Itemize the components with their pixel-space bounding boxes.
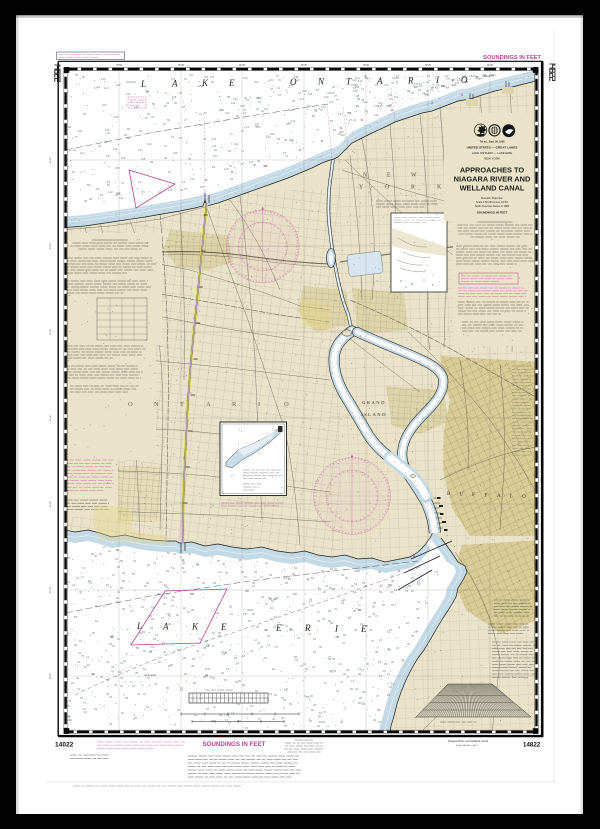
svg-text:77: 77 [367, 77, 370, 81]
svg-text:54: 54 [67, 704, 70, 708]
svg-text:F: F [472, 492, 475, 498]
svg-text:59: 59 [106, 678, 109, 682]
svg-text:39: 39 [106, 692, 109, 696]
svg-text:15: 15 [260, 645, 263, 649]
svg-text:60: 60 [358, 608, 361, 612]
svg-text:53: 53 [212, 631, 215, 635]
svg-text:27: 27 [103, 545, 106, 549]
svg-text:45: 45 [94, 554, 97, 558]
svg-text:12: 12 [254, 638, 257, 642]
svg-text:20: 20 [147, 112, 150, 116]
svg-text:45: 45 [179, 91, 182, 95]
svg-text:32: 32 [67, 714, 70, 718]
svg-text:79°20': 79°20' [487, 65, 494, 67]
svg-text:66: 66 [146, 581, 149, 585]
svg-text:39: 39 [191, 592, 194, 596]
svg-text:41: 41 [250, 649, 253, 653]
svg-text:10: 10 [180, 688, 183, 692]
svg-text:22: 22 [353, 118, 356, 122]
svg-text:47: 47 [276, 74, 279, 78]
svg-text:82: 82 [411, 91, 414, 95]
svg-text:28: 28 [328, 609, 331, 613]
svg-text:57: 57 [283, 151, 286, 155]
svg-text:31: 31 [220, 640, 223, 644]
svg-text:131: 131 [101, 77, 106, 81]
svg-text:57: 57 [275, 645, 278, 649]
svg-text:60: 60 [211, 80, 214, 84]
svg-text:10: 10 [87, 663, 90, 667]
svg-text:64: 64 [212, 165, 215, 169]
svg-text:128: 128 [289, 108, 294, 112]
svg-text:14: 14 [353, 590, 356, 594]
svg-text:63: 63 [228, 149, 231, 153]
svg-text:76: 76 [371, 639, 374, 643]
svg-text:38: 38 [378, 570, 381, 574]
svg-text:44: 44 [303, 662, 306, 666]
svg-text:64: 64 [365, 109, 368, 113]
svg-text:13: 13 [138, 180, 141, 184]
svg-text:46: 46 [257, 641, 260, 645]
svg-text:101: 101 [254, 80, 259, 84]
svg-text:18: 18 [107, 131, 110, 135]
svg-text:122: 122 [108, 190, 113, 194]
svg-text:41: 41 [417, 600, 420, 604]
svg-text:19: 19 [100, 193, 103, 197]
svg-text:Tonawanda: Tonawanda [144, 674, 157, 677]
svg-text:A: A [497, 493, 501, 499]
svg-text:22: 22 [98, 144, 101, 148]
svg-text:17: 17 [267, 643, 270, 647]
svg-text:14: 14 [153, 561, 156, 565]
svg-text:54: 54 [319, 711, 322, 715]
svg-text:50: 50 [306, 695, 309, 699]
svg-text:95: 95 [292, 99, 295, 103]
svg-text:37: 37 [80, 696, 83, 700]
svg-text:27: 27 [376, 694, 379, 698]
svg-text:19: 19 [255, 124, 258, 128]
svg-text:77: 77 [290, 139, 293, 143]
svg-text:38: 38 [135, 671, 138, 675]
svg-text:Scale 1:80,000 at Lat. 43°10': Scale 1:80,000 at Lat. 43°10' [476, 201, 509, 204]
svg-text:45: 45 [354, 628, 357, 632]
svg-text:56: 56 [82, 75, 85, 79]
svg-text:14822: 14822 [523, 742, 541, 749]
svg-text:76: 76 [294, 592, 297, 596]
svg-text:79°50': 79°50' [116, 65, 123, 67]
svg-text:10: 10 [76, 576, 79, 580]
svg-text:129: 129 [324, 95, 329, 99]
svg-text:76: 76 [265, 602, 268, 606]
svg-text:E: E [275, 623, 282, 633]
svg-text:115: 115 [116, 83, 121, 87]
svg-text:68: 68 [362, 702, 365, 706]
svg-text:32: 32 [336, 689, 339, 693]
svg-text:42: 42 [168, 622, 171, 626]
svg-text:27: 27 [334, 94, 337, 98]
svg-text:36: 36 [332, 85, 335, 89]
svg-text:110: 110 [231, 101, 236, 105]
svg-text:47: 47 [375, 614, 378, 618]
svg-text:99: 99 [150, 160, 153, 164]
svg-text:43°25': 43°25' [50, 672, 52, 679]
svg-text:41: 41 [106, 660, 109, 664]
svg-text:LAKE ONTARIO — LAKE ERIE: LAKE ONTARIO — LAKE ERIE [472, 151, 513, 155]
svg-text:57: 57 [171, 566, 174, 570]
svg-text:21: 21 [379, 638, 382, 642]
svg-text:38: 38 [110, 635, 113, 639]
svg-text:115: 115 [330, 91, 335, 95]
svg-text:58: 58 [356, 85, 359, 89]
svg-text:25: 25 [332, 587, 335, 591]
svg-text:40: 40 [91, 672, 94, 676]
svg-text:15: 15 [264, 656, 267, 660]
svg-text:19: 19 [123, 659, 126, 663]
svg-text:24: 24 [261, 595, 264, 599]
svg-text:39: 39 [164, 156, 167, 160]
svg-text:27: 27 [184, 118, 187, 122]
svg-text:71: 71 [171, 604, 174, 608]
svg-text:48: 48 [269, 597, 272, 601]
svg-text:SOUNDINGS IN FEET: SOUNDINGS IN FEET [477, 211, 508, 215]
svg-text:123: 123 [80, 151, 85, 155]
svg-text:O: O [385, 185, 389, 191]
svg-text:76: 76 [164, 708, 167, 712]
svg-text:78: 78 [362, 690, 365, 694]
svg-text:20: 20 [245, 726, 248, 730]
svg-text:41: 41 [426, 80, 429, 84]
svg-text:53: 53 [255, 689, 258, 693]
svg-text:42: 42 [77, 660, 80, 664]
svg-text:E: E [360, 624, 367, 634]
svg-text:42: 42 [391, 660, 394, 664]
svg-text:34: 34 [230, 177, 233, 181]
svg-text:73: 73 [203, 137, 206, 141]
svg-text:49: 49 [373, 718, 376, 722]
svg-text:50: 50 [218, 634, 221, 638]
svg-text:32: 32 [99, 552, 102, 556]
svg-text:R: R [407, 76, 414, 86]
svg-text:71: 71 [241, 149, 244, 153]
svg-text:75: 75 [212, 676, 215, 680]
svg-text:35: 35 [226, 713, 229, 717]
svg-text:65: 65 [289, 702, 292, 706]
svg-text:35: 35 [285, 581, 288, 585]
svg-text:22: 22 [183, 570, 186, 574]
svg-text:28: 28 [100, 675, 103, 679]
svg-text:132: 132 [352, 78, 357, 82]
svg-text:136: 136 [233, 97, 238, 101]
svg-text:35: 35 [75, 73, 78, 77]
svg-text:69: 69 [142, 630, 145, 634]
svg-text:79: 79 [151, 115, 154, 119]
svg-text:70: 70 [155, 633, 158, 637]
svg-text:41: 41 [108, 549, 111, 553]
svg-text:41: 41 [197, 84, 200, 88]
svg-text:31: 31 [270, 87, 273, 91]
svg-text:16: 16 [391, 682, 394, 686]
svg-text:78: 78 [120, 676, 123, 680]
svg-text:35: 35 [366, 662, 369, 666]
svg-text:78: 78 [81, 654, 84, 658]
svg-text:70: 70 [278, 78, 281, 82]
svg-text:59: 59 [379, 590, 382, 594]
svg-text:Mercator Projection: Mercator Projection [481, 197, 503, 200]
svg-text:136: 136 [121, 156, 126, 160]
svg-text:R: R [232, 401, 237, 408]
svg-text:122: 122 [104, 86, 109, 90]
svg-text:12: 12 [265, 561, 268, 565]
svg-text:86: 86 [127, 127, 130, 131]
svg-text:79: 79 [269, 692, 272, 696]
svg-text:22: 22 [252, 612, 255, 616]
svg-text:76: 76 [368, 615, 371, 619]
svg-text:38: 38 [227, 95, 230, 99]
svg-text:61: 61 [419, 82, 422, 86]
svg-text:85: 85 [127, 136, 130, 140]
svg-text:39: 39 [183, 656, 186, 660]
svg-text:66: 66 [305, 667, 308, 671]
svg-text:98: 98 [68, 125, 71, 129]
svg-text:79°45': 79°45' [178, 65, 185, 67]
svg-text:112: 112 [307, 104, 312, 108]
svg-text:33: 33 [79, 129, 82, 133]
svg-text:88: 88 [87, 183, 90, 187]
svg-text:38: 38 [384, 662, 387, 666]
svg-text:75: 75 [164, 596, 167, 600]
svg-text:64: 64 [157, 592, 160, 596]
svg-text:56: 56 [238, 719, 241, 723]
svg-text:35: 35 [67, 556, 70, 560]
svg-text:48: 48 [284, 138, 287, 142]
svg-text:64: 64 [88, 579, 91, 583]
svg-text:51: 51 [387, 630, 390, 634]
svg-text:61: 61 [342, 641, 345, 645]
svg-text:106: 106 [115, 166, 120, 170]
svg-text:31: 31 [163, 122, 166, 126]
svg-text:115: 115 [200, 185, 205, 189]
svg-text:49: 49 [122, 571, 125, 575]
svg-text:25: 25 [350, 687, 353, 691]
svg-text:K: K [191, 622, 199, 632]
svg-text:APPROACHES TO: APPROACHES TO [460, 166, 525, 175]
svg-text:54: 54 [184, 77, 187, 81]
svg-text:132: 132 [168, 188, 173, 192]
svg-text:101: 101 [264, 107, 269, 111]
svg-text:40: 40 [272, 717, 275, 721]
svg-text:30: 30 [391, 579, 394, 583]
svg-text:62: 62 [158, 660, 161, 664]
svg-text:24: 24 [427, 74, 430, 78]
svg-text:45: 45 [76, 676, 79, 680]
svg-text:60: 60 [167, 118, 170, 122]
svg-text:115: 115 [212, 144, 217, 148]
svg-text:92: 92 [139, 129, 142, 133]
svg-text:16: 16 [324, 681, 327, 685]
svg-text:55: 55 [72, 170, 75, 174]
svg-text:102: 102 [102, 103, 107, 107]
svg-text:69: 69 [193, 681, 196, 685]
svg-text:30: 30 [336, 635, 339, 639]
svg-text:66: 66 [238, 679, 241, 683]
svg-text:13: 13 [72, 583, 75, 587]
svg-text:79°30': 79°30' [363, 65, 370, 67]
svg-text:71: 71 [334, 607, 337, 611]
svg-text:71: 71 [298, 91, 301, 95]
svg-text:48: 48 [375, 650, 378, 654]
svg-text:103: 103 [269, 78, 274, 82]
svg-text:46: 46 [184, 672, 187, 676]
svg-text:120: 120 [378, 101, 383, 105]
svg-text:61: 61 [388, 648, 391, 652]
svg-text:47: 47 [229, 605, 232, 609]
svg-text:45: 45 [217, 559, 220, 563]
svg-text:94: 94 [96, 187, 99, 191]
svg-text:29: 29 [216, 611, 219, 615]
svg-text:70: 70 [351, 584, 354, 588]
svg-text:71: 71 [260, 575, 263, 579]
svg-text:64: 64 [378, 660, 381, 664]
svg-text:30: 30 [416, 607, 419, 611]
svg-text:25: 25 [274, 597, 277, 601]
svg-text:25: 25 [133, 559, 136, 563]
svg-text:68: 68 [373, 601, 376, 605]
svg-text:14022: 14022 [55, 742, 74, 749]
svg-text:47: 47 [323, 710, 326, 714]
svg-text:52: 52 [224, 678, 227, 682]
svg-text:97: 97 [389, 97, 392, 101]
svg-text:72: 72 [82, 566, 85, 570]
svg-text:80: 80 [288, 577, 291, 581]
svg-text:105: 105 [173, 151, 178, 155]
svg-text:43°45': 43°45' [50, 328, 52, 335]
svg-text:56: 56 [167, 551, 170, 555]
svg-text:39: 39 [319, 645, 322, 649]
svg-text:59: 59 [269, 573, 272, 577]
svg-text:102: 102 [243, 76, 248, 80]
svg-text:68: 68 [407, 89, 410, 93]
svg-text:62: 62 [313, 703, 316, 707]
svg-text:34: 34 [390, 590, 393, 594]
svg-text:100: 100 [263, 164, 268, 168]
svg-text:43°55': 43°55' [50, 156, 52, 163]
svg-text:109: 109 [114, 115, 119, 119]
svg-text:23: 23 [230, 612, 233, 616]
svg-text:84: 84 [484, 74, 487, 78]
svg-text:53: 53 [316, 88, 319, 92]
svg-text:18: 18 [107, 180, 110, 184]
svg-text:48: 48 [254, 570, 257, 574]
svg-text:49: 49 [89, 197, 92, 201]
svg-text:N: N [154, 401, 159, 408]
svg-text:24: 24 [246, 125, 249, 129]
svg-text:107: 107 [116, 191, 121, 195]
svg-text:62: 62 [214, 148, 217, 152]
svg-text:85: 85 [312, 114, 315, 118]
svg-text:78: 78 [333, 669, 336, 673]
svg-text:Scale 1:80,000 — Ed. 7: Scale 1:80,000 — Ed. 7 [456, 745, 479, 747]
svg-text:37: 37 [316, 128, 319, 132]
svg-text:10: 10 [84, 710, 87, 714]
svg-text:A: A [162, 621, 169, 631]
svg-text:15: 15 [179, 136, 182, 140]
svg-text:55: 55 [125, 696, 128, 700]
svg-text:46: 46 [407, 642, 410, 646]
svg-text:35: 35 [109, 722, 112, 726]
svg-text:30: 30 [203, 675, 206, 679]
svg-text:40: 40 [378, 720, 381, 724]
svg-text:36: 36 [277, 137, 280, 141]
svg-text:68: 68 [211, 719, 214, 723]
svg-text:38: 38 [219, 713, 222, 717]
svg-text:26: 26 [317, 724, 320, 728]
svg-text:NIAGARA RIVER AND: NIAGARA RIVER AND [454, 175, 531, 184]
svg-text:26: 26 [322, 617, 325, 621]
svg-text:71: 71 [270, 606, 273, 610]
svg-text:76: 76 [281, 696, 284, 700]
svg-text:55: 55 [74, 615, 77, 619]
svg-text:137: 137 [106, 154, 111, 158]
svg-text:68: 68 [146, 90, 149, 94]
svg-text:21: 21 [67, 580, 70, 584]
svg-text:North American Datum of 1983: North American Datum of 1983 [475, 205, 510, 208]
svg-text:73: 73 [297, 636, 300, 640]
svg-text:54: 54 [379, 674, 382, 678]
svg-text:13: 13 [351, 679, 354, 683]
svg-text:78: 78 [329, 669, 332, 673]
svg-text:51: 51 [354, 582, 357, 586]
svg-text:130: 130 [489, 74, 494, 78]
svg-text:66: 66 [358, 701, 361, 705]
svg-text:115: 115 [210, 75, 215, 79]
svg-text:93: 93 [391, 81, 394, 85]
svg-text:30: 30 [343, 633, 346, 637]
svg-text:25: 25 [329, 586, 332, 590]
svg-text:37: 37 [75, 135, 78, 139]
svg-text:58: 58 [120, 559, 123, 563]
svg-text:32: 32 [406, 621, 409, 625]
svg-text:38: 38 [332, 657, 335, 661]
svg-text:43°30': 43°30' [50, 586, 52, 593]
svg-text:49: 49 [359, 696, 362, 700]
svg-text:54: 54 [120, 684, 123, 688]
svg-text:54: 54 [311, 576, 314, 580]
svg-text:29: 29 [389, 103, 392, 107]
svg-text:72: 72 [414, 630, 417, 634]
svg-text:37: 37 [187, 610, 190, 614]
svg-text:40: 40 [451, 78, 454, 82]
svg-text:29: 29 [383, 669, 386, 673]
svg-text:R: R [304, 623, 311, 633]
svg-text:63: 63 [153, 637, 156, 641]
svg-text:48: 48 [122, 607, 125, 611]
svg-text:W: W [411, 173, 417, 179]
svg-text:66: 66 [92, 631, 95, 635]
svg-text:16: 16 [183, 606, 186, 610]
svg-text:66: 66 [309, 719, 312, 723]
svg-text:43: 43 [325, 584, 328, 588]
svg-text:28: 28 [117, 565, 120, 569]
svg-text:118: 118 [141, 157, 146, 161]
svg-text:64: 64 [391, 603, 394, 607]
svg-text:55: 55 [207, 643, 210, 647]
svg-text:39: 39 [192, 657, 195, 661]
svg-text:56: 56 [132, 572, 135, 576]
svg-text:66: 66 [333, 128, 336, 132]
svg-text:49: 49 [163, 602, 166, 606]
svg-text:80: 80 [417, 616, 420, 620]
svg-text:134: 134 [338, 112, 343, 116]
svg-text:34: 34 [69, 718, 72, 722]
